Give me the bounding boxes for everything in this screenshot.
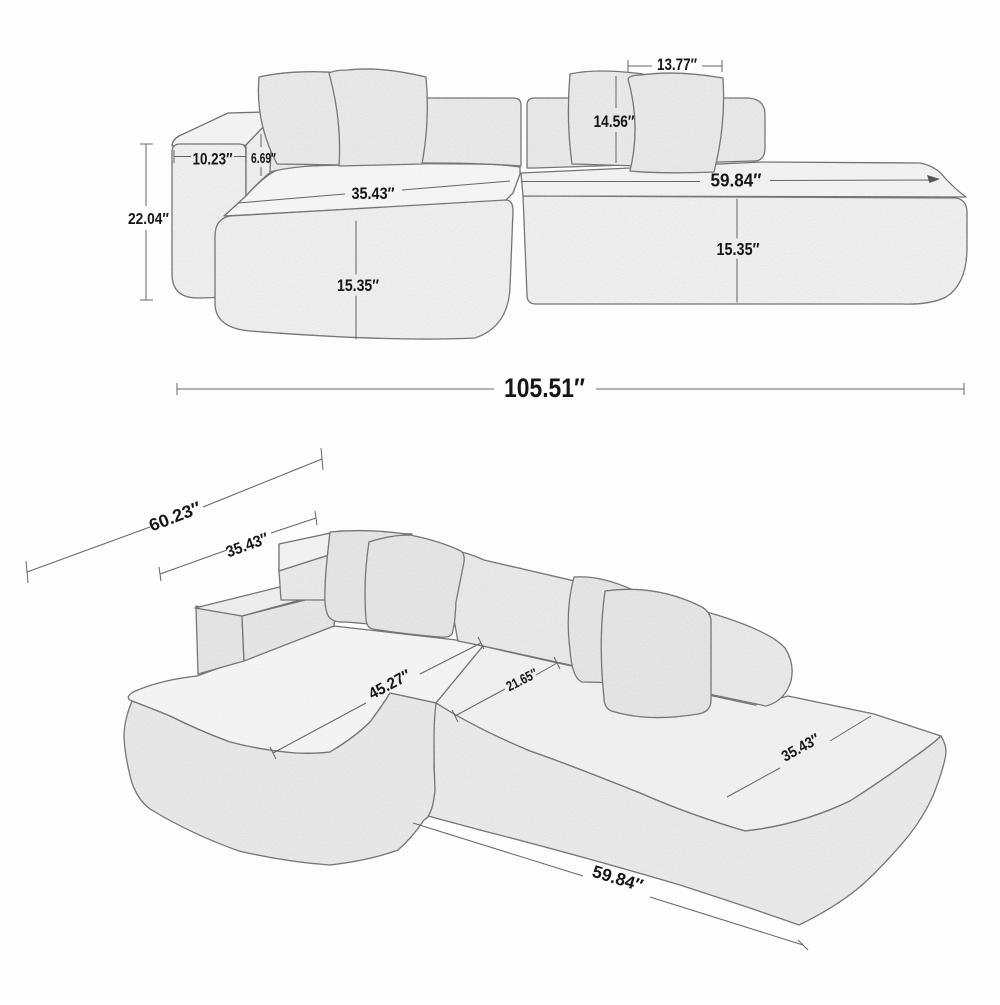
svg-text:10.23″: 10.23″ [193,151,233,169]
svg-text:35.43″: 35.43″ [352,184,395,203]
svg-text:22.04″: 22.04″ [128,211,170,228]
svg-text:35.43″: 35.43″ [224,530,271,561]
svg-text:14.56″: 14.56″ [594,113,635,131]
svg-text:105.51″: 105.51″ [504,373,585,403]
svg-text:59.84″: 59.84″ [711,170,762,191]
svg-text:6.69″: 6.69″ [251,150,276,167]
svg-text:60.23″: 60.23″ [146,497,204,535]
svg-text:15.35″: 15.35″ [717,239,760,259]
svg-text:13.77″: 13.77″ [657,56,697,74]
svg-text:15.35″: 15.35″ [337,276,379,295]
